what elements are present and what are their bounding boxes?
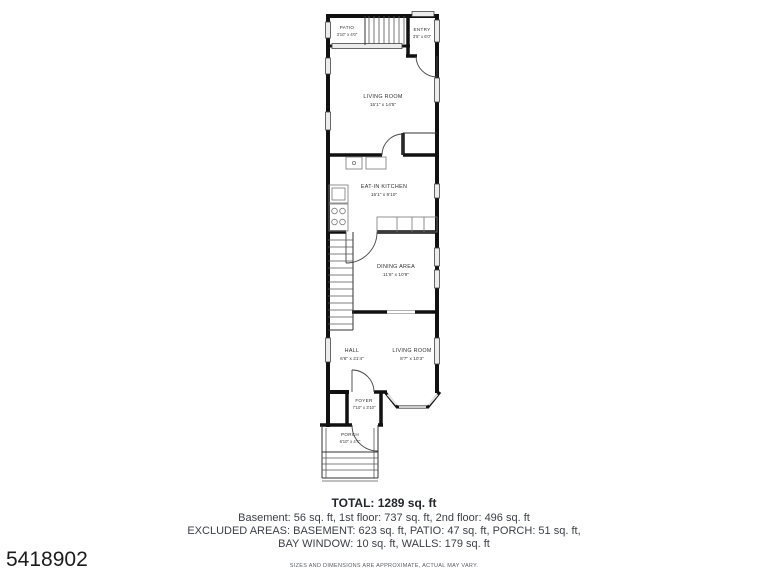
- bay-window: [385, 392, 440, 407]
- room-dims-kitchen: 15'1" x 9'10": [371, 192, 398, 198]
- room-dims-porch: 6'10" x 4'4": [340, 439, 361, 444]
- stairs-main: [328, 232, 353, 330]
- room-label-living-room-lower: LIVING ROOM: [392, 348, 431, 354]
- room-dims-patio: 3'10" x 4'0": [337, 32, 358, 37]
- area-summary: TOTAL: 1289 sq. ft Basement: 56 sq. ft, …: [0, 497, 768, 573]
- room-dims-living-room-upper: 15'1" x 14'5": [370, 102, 397, 108]
- floor-plan: PATIO 3'10" x 4'0" ENTRY 3'5" x 6'0" LIV…: [0, 0, 768, 576]
- exterior-walls: [326, 14, 439, 427]
- doors: [346, 56, 437, 451]
- excluded-areas-1: EXCLUDED AREAS: BASEMENT: 623 sq. ft, PA…: [0, 525, 768, 538]
- room-dims-foyer: 7'10" x 3'10": [353, 405, 376, 410]
- room-labels: PATIO 3'10" x 4'0" ENTRY 3'5" x 6'0" LIV…: [337, 25, 432, 444]
- room-label-dining: DINING AREA: [377, 264, 415, 270]
- floor-areas: Basement: 56 sq. ft, 1st floor: 737 sq. …: [0, 512, 768, 525]
- room-label-kitchen: EAT-IN KITCHEN: [361, 184, 407, 190]
- room-dims-living-room-lower: 8'7" x 10'3": [400, 356, 424, 362]
- interior-walls: [320, 14, 439, 425]
- stairs-upper: [365, 16, 404, 45]
- cased-opening: [387, 311, 415, 314]
- room-dims-hall: 6'6" x 21'4": [340, 356, 364, 362]
- excluded-areas-2: BAY WINDOW: 10 sq. ft, WALLS: 179 sq. ft: [0, 538, 768, 551]
- disclaimer: SIZES AND DIMENSIONS ARE APPROXIMATE, AC…: [0, 560, 768, 573]
- total-area: TOTAL: 1289 sq. ft: [0, 497, 768, 510]
- room-label-porch: PORCH: [341, 432, 359, 437]
- room-label-patio: PATIO: [340, 25, 355, 30]
- room-label-foyer: FOYER: [355, 398, 373, 403]
- room-dims-dining: 11'8" x 10'9": [383, 272, 409, 278]
- room-dims-entry: 3'5" x 6'0": [413, 34, 432, 39]
- listing-id: 5418902: [6, 548, 88, 572]
- room-label-entry: ENTRY: [414, 27, 431, 32]
- room-label-hall: HALL: [345, 348, 360, 354]
- room-label-living-room-upper: LIVING ROOM: [363, 94, 402, 100]
